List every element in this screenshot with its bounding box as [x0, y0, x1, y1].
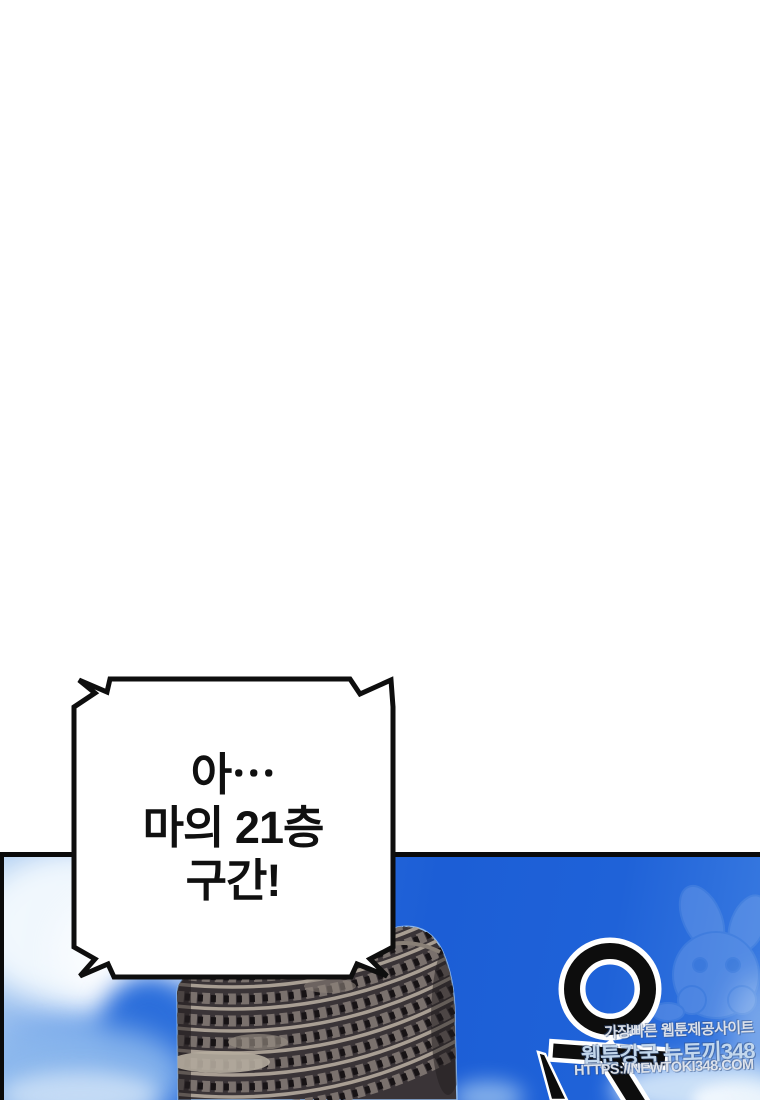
speech-bubble: 아⋯ 마의 21층 구간!: [55, 660, 405, 990]
speech-line-1: 아⋯: [73, 748, 393, 801]
webtoon-page: 가장빠른 웹툰제공사이트 웹툰강국 뉴토끼348 HTTPS://NEWTOKI…: [0, 0, 760, 1100]
speech-line-3: 구간!: [73, 854, 393, 907]
speech-bubble-text: 아⋯ 마의 21층 구간!: [73, 748, 393, 907]
speech-line-2: 마의 21층: [73, 801, 393, 854]
mascot-watermark: [652, 879, 760, 1021]
